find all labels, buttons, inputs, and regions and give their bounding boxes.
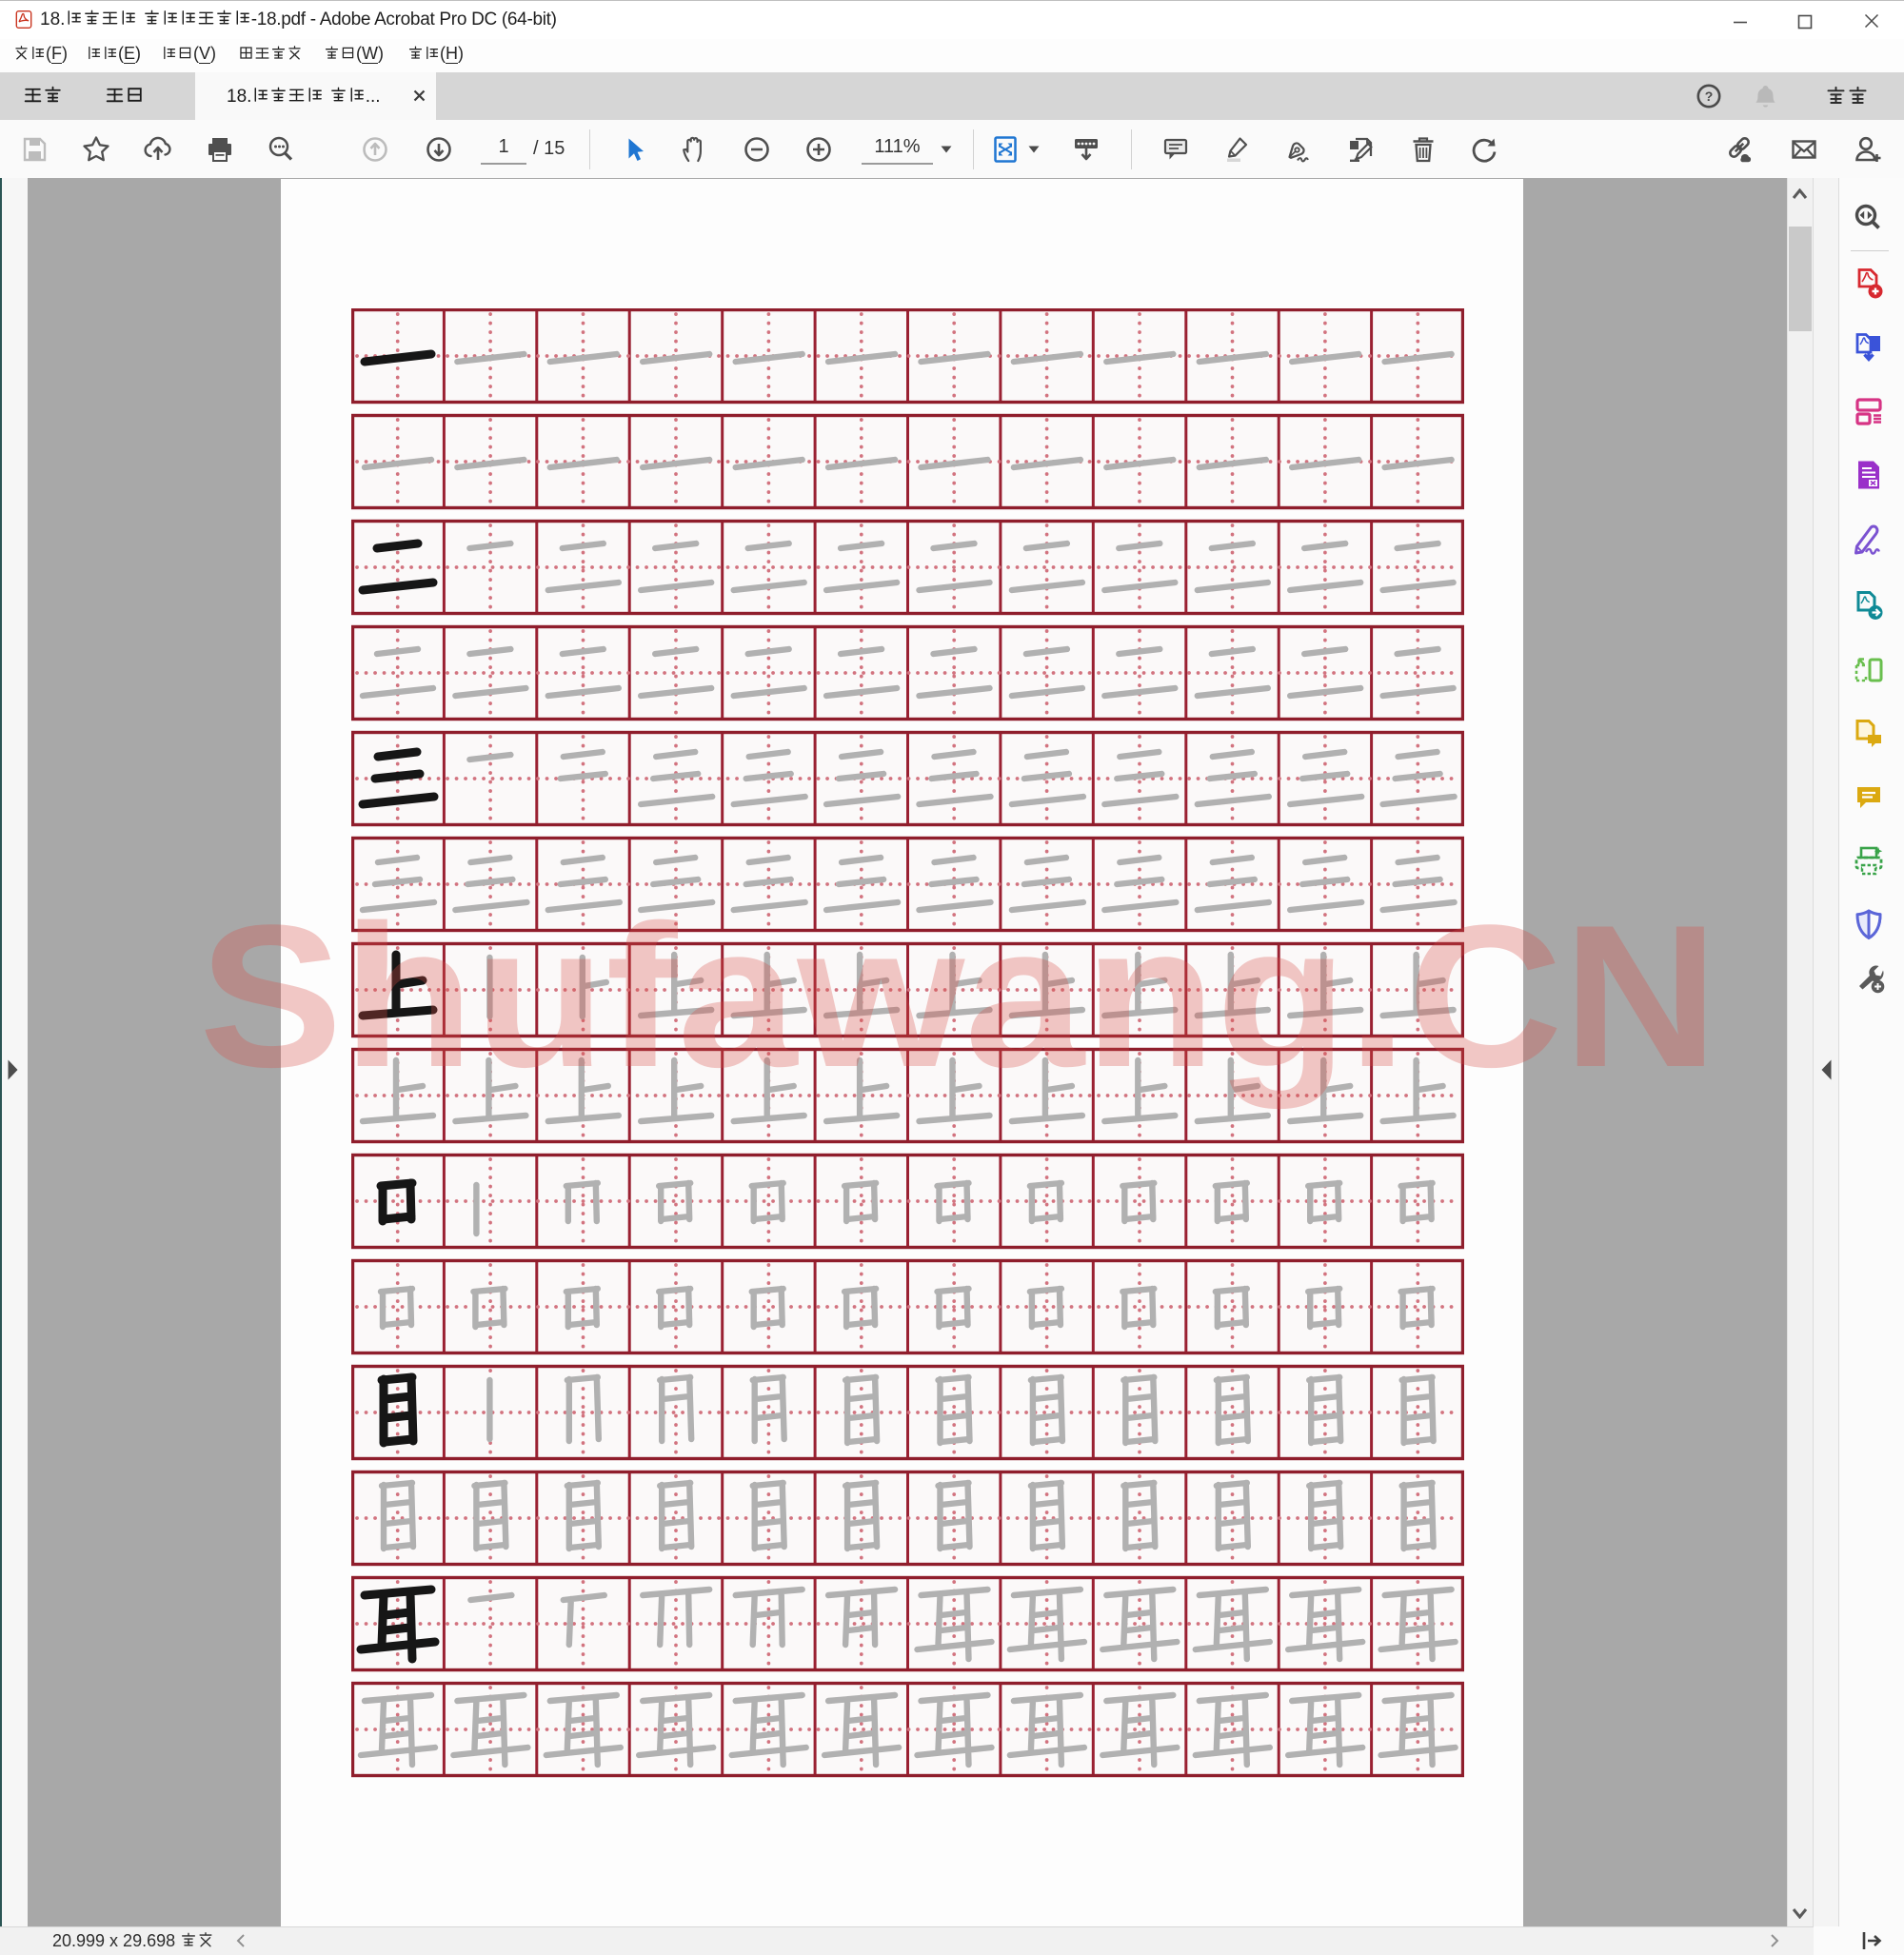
svg-text:?: ? bbox=[1705, 89, 1714, 104]
